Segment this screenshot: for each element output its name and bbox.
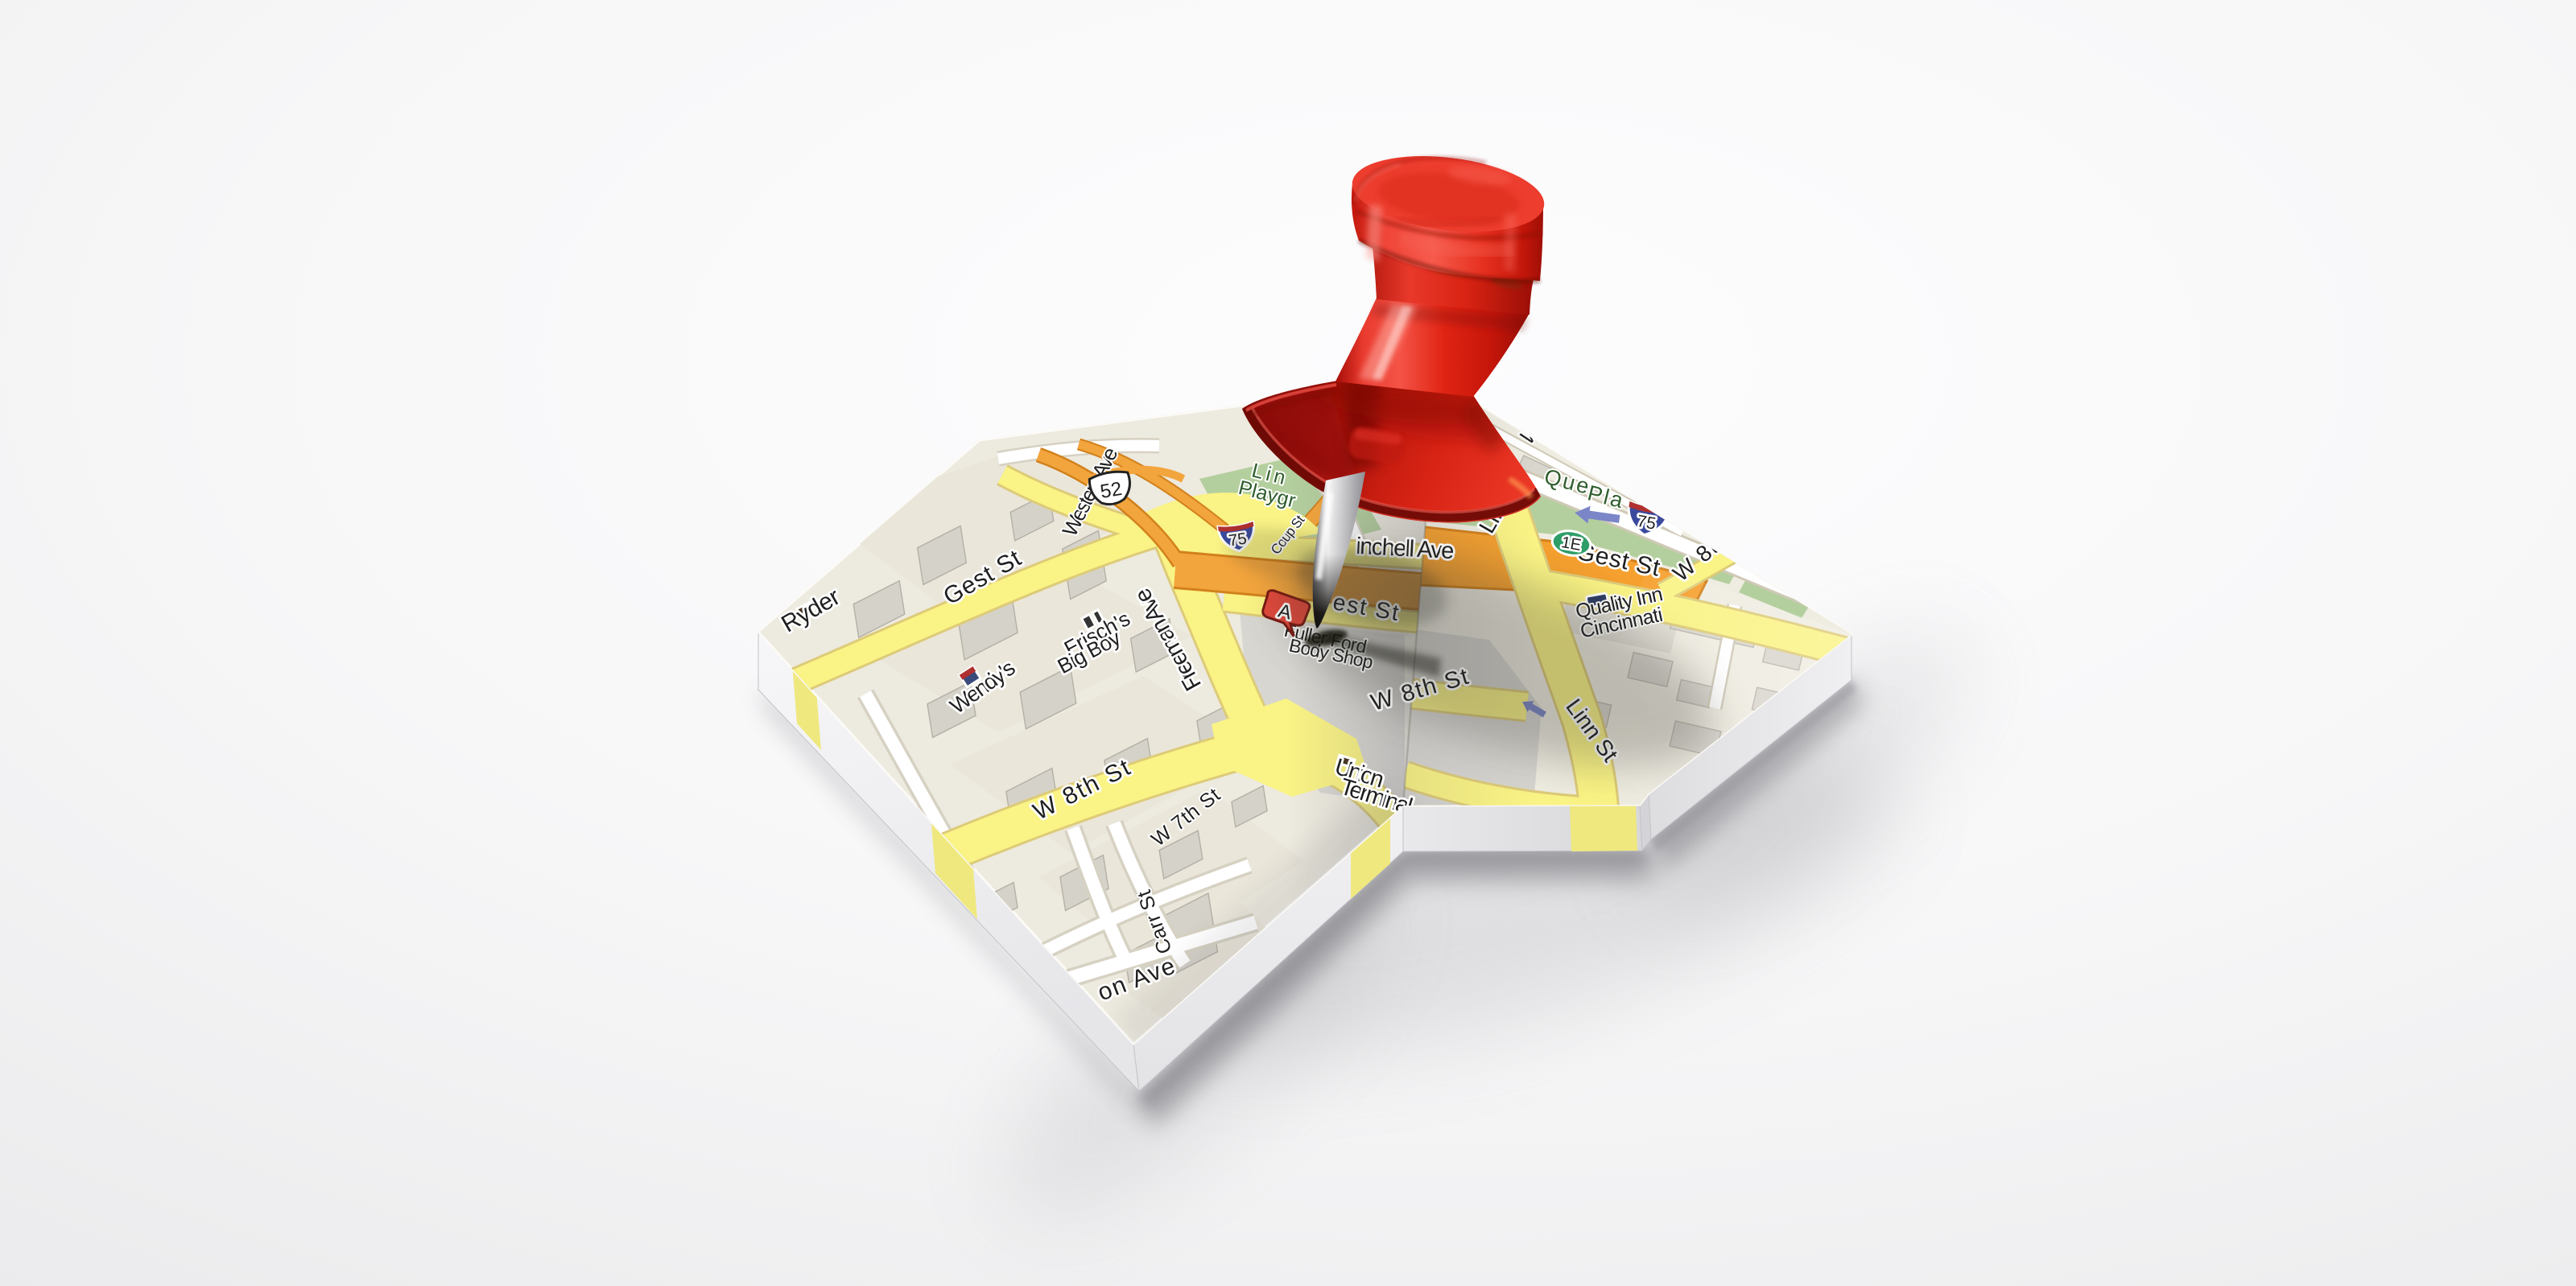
svg-text:75: 75 (1636, 512, 1657, 534)
svg-text:1E: 1E (1560, 534, 1583, 554)
svg-text:52: 52 (1099, 478, 1124, 503)
